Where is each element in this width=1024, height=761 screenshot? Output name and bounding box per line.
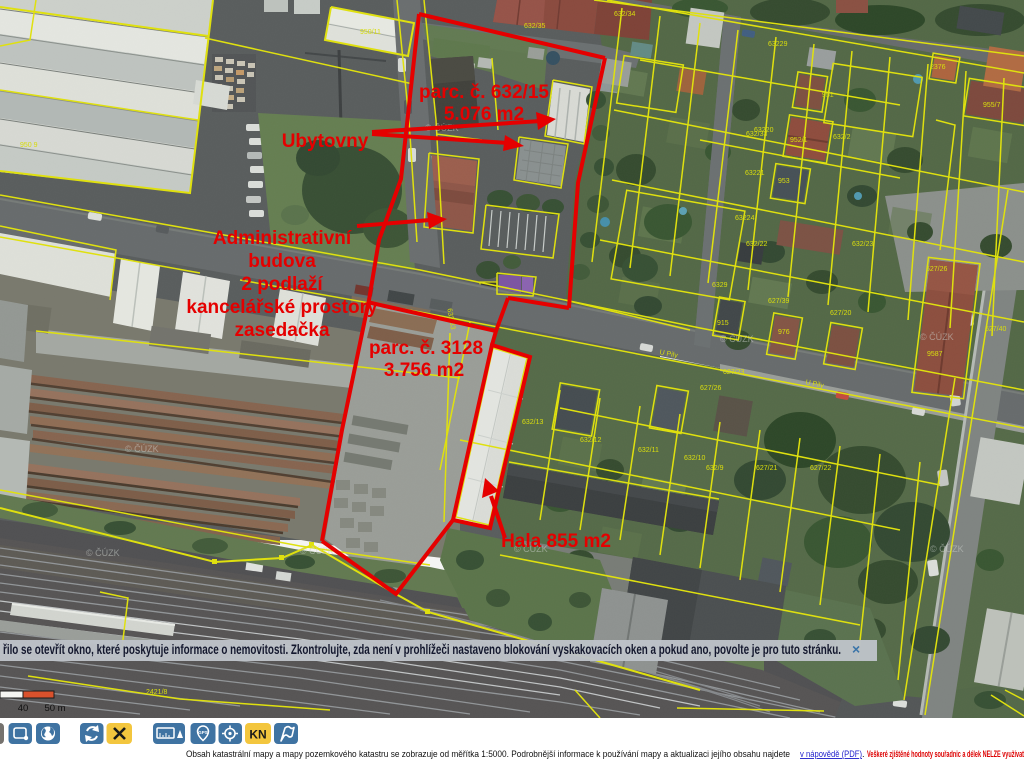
svg-text:Administrativní: Administrativní [213, 228, 352, 249]
svg-text:.: . [862, 749, 865, 759]
svg-text:GPS: GPS [198, 730, 208, 735]
svg-text:40: 40 [18, 703, 29, 714]
svg-text:řilo se otevřít okno, které po: řilo se otevřít okno, které poskytuje in… [3, 642, 841, 657]
svg-text:kancelářské prostory: kancelářské prostory [186, 297, 378, 318]
svg-text:Ubytovny: Ubytovny [282, 131, 369, 152]
svg-text:2 podlaží: 2 podlaží [241, 274, 323, 295]
svg-text:×: × [852, 641, 860, 657]
svg-text:© ČÚZK: © ČÚZK [86, 548, 120, 558]
svg-text:Veškeré zjištěné hodnoty souřa: Veškeré zjištěné hodnoty souřadnic a dél… [867, 749, 1024, 759]
svg-text:© ČÚZK: © ČÚZK [125, 444, 159, 454]
svg-text:Obsah katastrální mapy a mapy: Obsah katastrální mapy a mapy pozemkovéh… [186, 749, 790, 759]
svg-text:Hala 855 m2: Hala 855 m2 [501, 531, 611, 552]
svg-text:KN: KN [249, 728, 266, 742]
svg-text:budova: budova [248, 251, 316, 272]
svg-text:zasedačka: zasedačka [234, 320, 330, 341]
svg-text:parc. č. 3128: parc. č. 3128 [369, 338, 483, 359]
svg-text:50 m: 50 m [44, 703, 65, 714]
svg-text:© ČÚZK: © ČÚZK [920, 332, 954, 342]
svg-text:3.756 m2: 3.756 m2 [384, 360, 464, 381]
svg-text:© ČÚZK: © ČÚZK [720, 334, 754, 344]
svg-text:5.076 m2: 5.076 m2 [444, 104, 524, 125]
svg-text:parc. č. 632/15: parc. č. 632/15 [419, 82, 549, 103]
svg-text:© ČÚZK: © ČÚZK [930, 544, 964, 554]
svg-text:v nápovědě (PDF): v nápovědě (PDF) [800, 749, 862, 759]
